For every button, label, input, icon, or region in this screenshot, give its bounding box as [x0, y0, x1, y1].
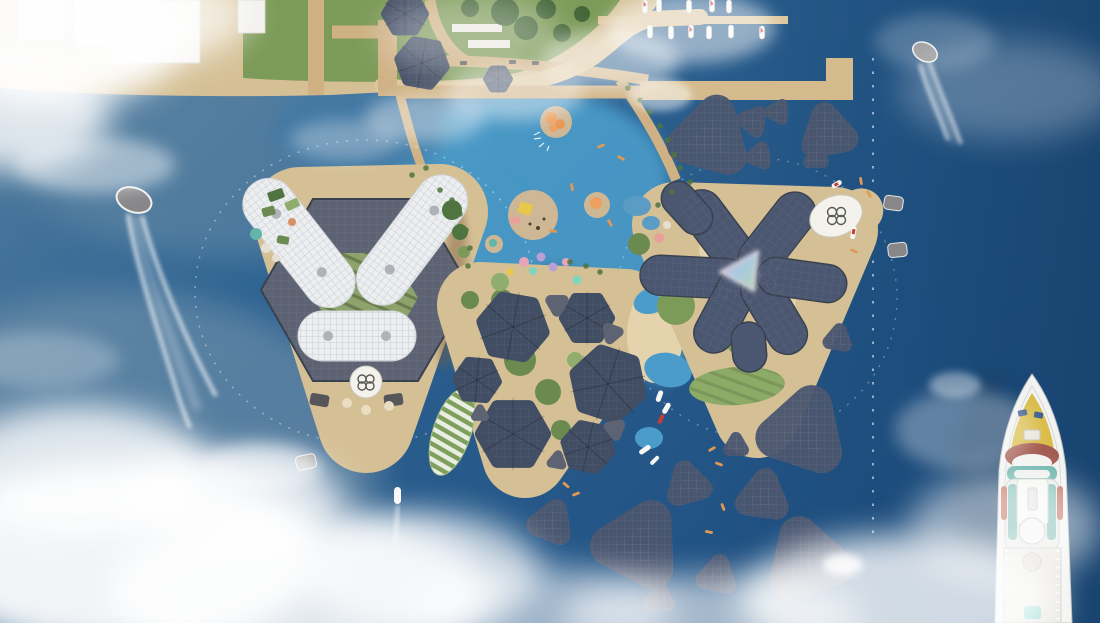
bush: [457, 211, 463, 217]
small-canopy: [551, 455, 562, 465]
solar-pod-grid: [743, 113, 759, 130]
islet: [508, 190, 558, 240]
bush: [449, 197, 455, 203]
catamaran: [883, 195, 904, 212]
bush: [567, 259, 573, 265]
bush: [467, 245, 473, 251]
solar-pod-grid: [829, 330, 845, 345]
bush: [669, 189, 675, 195]
bush: [677, 165, 683, 171]
bush: [597, 269, 603, 275]
solar-pod-grid: [815, 115, 846, 145]
solar-pod-grid: [729, 438, 743, 450]
logo-pad: [350, 366, 382, 398]
bush: [687, 179, 693, 185]
small-canopy: [609, 425, 621, 436]
small-canopy: [475, 408, 485, 417]
solar-pod-grid: [776, 406, 822, 453]
floating-city-aerial-render: [0, 0, 1100, 623]
bush: [583, 263, 589, 269]
solar-pod-grid: [678, 471, 702, 495]
dome-tent: [590, 197, 602, 209]
scene-canvas: [0, 0, 1100, 623]
bush: [409, 172, 415, 178]
dome-tent: [549, 124, 557, 132]
bush: [655, 202, 661, 208]
solar-pod-grid: [610, 520, 653, 568]
bush: [423, 165, 429, 171]
solar-pod-grid: [750, 148, 764, 163]
dome-tent: [489, 239, 497, 247]
bush: [463, 227, 469, 233]
solar-pod-grid: [685, 113, 728, 156]
solar-pod-grid: [770, 105, 782, 119]
solar-pod-grid: [809, 150, 823, 162]
small-canopy: [551, 300, 564, 311]
catamaran: [887, 242, 907, 258]
boat-hull: [394, 487, 401, 504]
small-canopy: [608, 328, 619, 340]
bush: [671, 152, 677, 158]
bush: [465, 263, 471, 269]
bush: [665, 137, 671, 143]
bush: [437, 187, 443, 193]
bush: [657, 123, 663, 129]
solar-pod-grid: [747, 480, 776, 507]
pier-end: [826, 58, 853, 100]
solar-pod-grid: [537, 510, 560, 535]
